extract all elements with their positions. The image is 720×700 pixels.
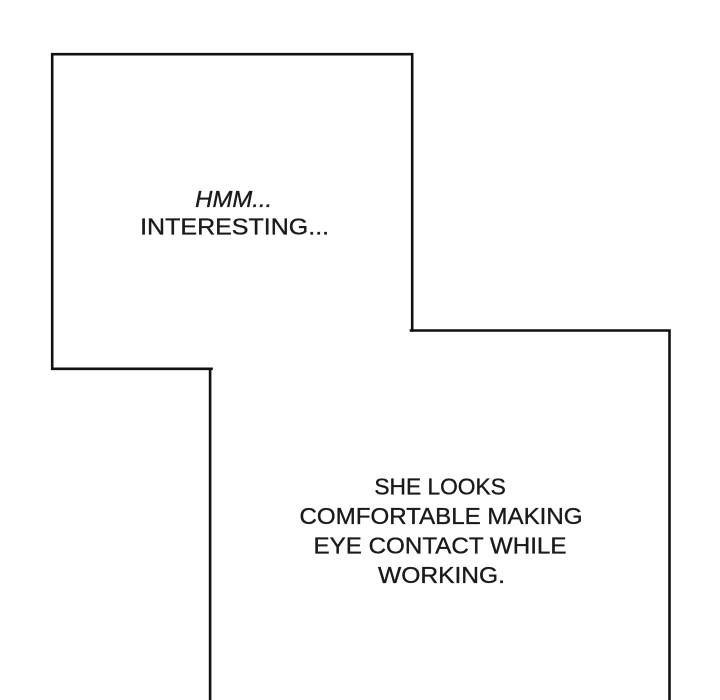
- svg-text:WORKING.: WORKING.: [378, 562, 505, 588]
- svg-text:HMM...: HMM...: [195, 186, 272, 212]
- svg-text:EYE CONTACT WHILE: EYE CONTACT WHILE: [314, 533, 567, 559]
- svg-text:SHE LOOKS: SHE LOOKS: [374, 474, 506, 500]
- svg-text:INTERESTING...: INTERESTING...: [140, 213, 329, 239]
- svg-text:COMFORTABLE MAKING: COMFORTABLE MAKING: [300, 503, 583, 529]
